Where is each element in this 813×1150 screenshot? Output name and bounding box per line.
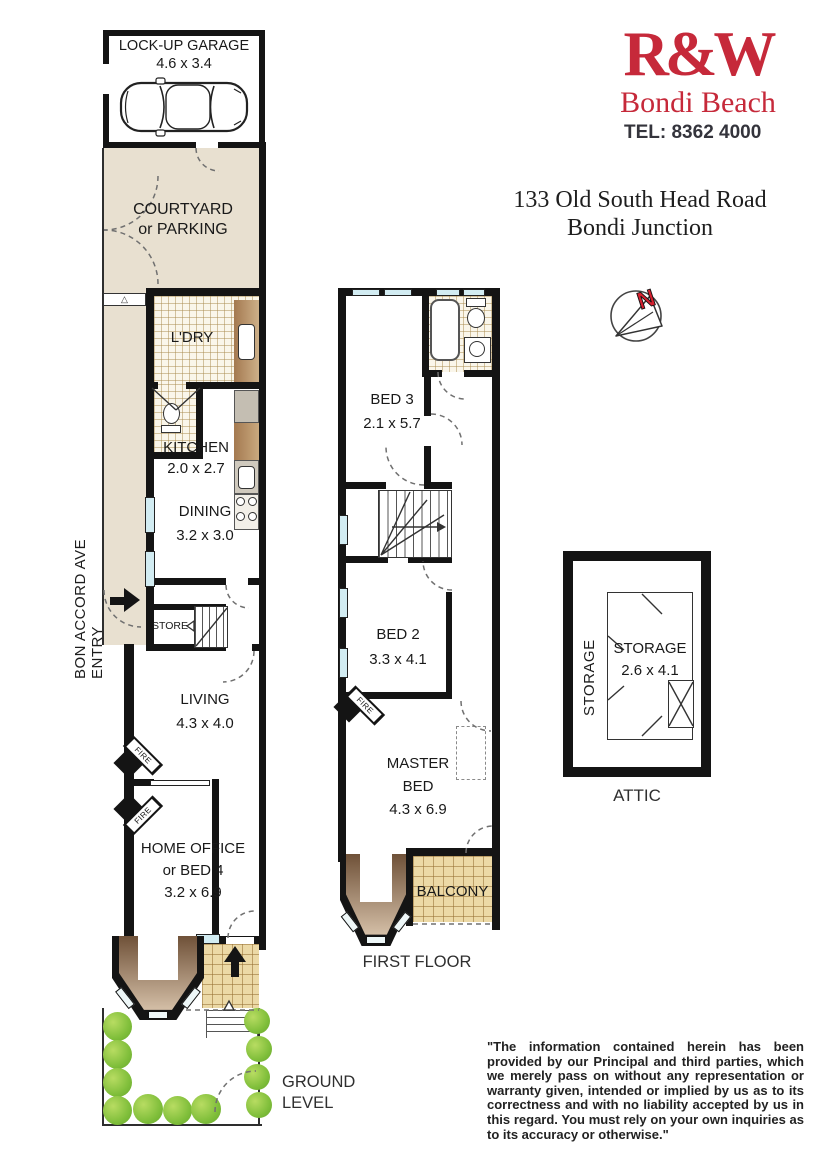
attic-hatch xyxy=(668,680,694,728)
bush-icon xyxy=(244,1064,270,1090)
laundry-name: L'DRY xyxy=(152,326,232,349)
level-label-attic: ATTIC xyxy=(592,784,682,807)
wall xyxy=(422,296,429,376)
master-name: MASTER xyxy=(366,752,470,775)
wall xyxy=(464,370,500,377)
address-line1: 133 Old South Head Road xyxy=(513,187,766,213)
door-arc xyxy=(228,911,255,938)
room-label-attic-storage: STORAGE 2.6 x 4.1 xyxy=(608,638,692,682)
bush-icon xyxy=(246,1036,272,1062)
window xyxy=(384,289,412,296)
room-label-balcony: BALCONY xyxy=(413,880,492,903)
door-arc xyxy=(386,447,424,485)
ground-level-line1: GROUND xyxy=(282,1072,382,1093)
bush-icon xyxy=(103,1068,132,1097)
room-label-living: LIVING 4.3 x 4.0 xyxy=(146,688,264,736)
bathtub-icon xyxy=(430,299,460,361)
room-label-garage: LOCK-UP GARAGE 4.6 x 3.4 xyxy=(109,37,259,73)
attic-storage-name: STORAGE xyxy=(608,638,692,660)
bush-icon xyxy=(163,1096,192,1125)
street-label: BON ACCORD AVE ENTRY xyxy=(72,494,106,679)
courtyard-name2: or PARKING xyxy=(103,220,263,240)
entry-arrow-icon xyxy=(224,946,246,978)
room-label-home-office: HOME OFFICE or BED 4 3.2 x 6.9 xyxy=(117,838,269,904)
toilet-icon xyxy=(163,403,180,424)
bush-icon xyxy=(244,1008,270,1034)
wall xyxy=(406,848,500,856)
stairs-icon xyxy=(194,606,228,648)
room-label-dining: DINING 3.2 x 3.0 xyxy=(146,500,264,548)
bush-icon xyxy=(103,1096,132,1125)
room-label-bed3: BED 3 2.1 x 5.7 xyxy=(344,388,440,436)
bush-icon xyxy=(103,1040,132,1069)
kitchen-name: KITCHEN xyxy=(142,437,250,458)
store-name: STORE xyxy=(147,620,193,632)
wall xyxy=(338,288,346,862)
laundry-sink-icon xyxy=(238,324,255,360)
window xyxy=(463,289,485,296)
master-name2: BED xyxy=(366,775,470,798)
toilet-icon xyxy=(467,308,485,328)
gate-marker: △ xyxy=(103,293,146,306)
wall xyxy=(252,644,266,651)
door-arc xyxy=(223,651,254,682)
window xyxy=(145,551,155,587)
toilet-tank xyxy=(466,298,486,307)
door-arc xyxy=(423,561,452,590)
living-dims: 4.3 x 4.0 xyxy=(146,712,264,736)
north-compass-icon: N xyxy=(606,282,670,346)
room-label-laundry: L'DRY xyxy=(152,326,232,349)
phone-number: TEL: 8362 4000 xyxy=(598,122,798,144)
home-office-name2: or BED 4 xyxy=(117,860,269,882)
courtyard-name: COURTYARD xyxy=(103,200,263,220)
window xyxy=(339,648,348,678)
bay-opening xyxy=(360,854,392,902)
room-label-master-bed: MASTER BED 4.3 x 6.9 xyxy=(366,752,470,821)
stairs-icon xyxy=(378,490,452,558)
bay-window xyxy=(340,854,412,946)
wall xyxy=(146,578,226,585)
front-door-gap xyxy=(226,937,254,944)
level-label-first: FIRST FLOOR xyxy=(358,952,476,973)
living-name: LIVING xyxy=(146,688,264,712)
kitchen-dims: 2.0 x 2.7 xyxy=(142,458,250,479)
balcony-name: BALCONY xyxy=(413,880,492,903)
fence-line xyxy=(102,1124,262,1126)
agency-logo: R&W Bondi Beach TEL: 8362 4000 xyxy=(598,22,798,144)
wall xyxy=(146,382,158,389)
entry-arrow-icon xyxy=(110,588,142,612)
mantel-ledge xyxy=(150,780,210,786)
window xyxy=(436,289,460,296)
room-label-store: STORE xyxy=(147,620,193,632)
garage-dims: 4.6 x 3.4 xyxy=(109,55,259,73)
room-label-kitchen: KITCHEN 2.0 x 2.7 xyxy=(142,437,250,479)
window xyxy=(352,289,380,296)
toilet-tank xyxy=(161,425,181,433)
dining-name: DINING xyxy=(146,500,264,524)
master-dims: 4.3 x 6.9 xyxy=(366,798,470,821)
door-gap xyxy=(196,142,218,148)
office-name: Bondi Beach xyxy=(598,86,798,119)
window xyxy=(339,588,348,618)
home-office-dims: 3.2 x 6.9 xyxy=(117,882,269,904)
wall xyxy=(424,482,452,489)
room-label-bed2: BED 2 3.3 x 4.1 xyxy=(348,622,448,672)
wall xyxy=(346,482,386,489)
level-label-ground: GROUND LEVEL xyxy=(282,1072,382,1114)
window xyxy=(148,1011,168,1019)
wall xyxy=(492,288,500,930)
room-label-courtyard: COURTYARD or PARKING xyxy=(103,200,263,240)
bed2-name: BED 2 xyxy=(348,622,448,647)
garage-name: LOCK-UP GARAGE xyxy=(109,37,259,55)
attic-storage-dims: 2.6 x 4.1 xyxy=(608,660,692,682)
bed3-dims: 2.1 x 5.7 xyxy=(344,412,440,436)
attic-label: ATTIC xyxy=(592,784,682,807)
disclaimer-text: "The information contained herein has be… xyxy=(487,1040,804,1142)
bay-opening xyxy=(138,936,178,980)
door-arc xyxy=(226,585,249,608)
bush-icon xyxy=(133,1094,163,1124)
rw-logo-text: R&W xyxy=(598,22,798,86)
bush-icon xyxy=(246,1092,272,1118)
property-address: 133 Old South Head Road Bondi Junction xyxy=(480,186,800,242)
car-icon xyxy=(118,76,250,138)
door-arc xyxy=(438,372,465,399)
floorplan-page: R&W Bondi Beach TEL: 8362 4000 133 Old S… xyxy=(0,0,813,1150)
window xyxy=(366,936,386,944)
wall xyxy=(248,578,266,585)
bed3-name: BED 3 xyxy=(344,388,440,412)
fridge-icon xyxy=(234,390,259,423)
bed2-dims: 3.3 x 4.1 xyxy=(348,647,448,672)
bush-icon xyxy=(191,1094,221,1124)
home-office-name: HOME OFFICE xyxy=(117,838,269,860)
window xyxy=(339,515,348,545)
basin-bowl xyxy=(469,341,485,357)
ground-level-line2: LEVEL xyxy=(282,1093,382,1114)
dining-dims: 3.2 x 3.0 xyxy=(146,524,264,548)
first-floor-label: FIRST FLOOR xyxy=(358,952,476,973)
wall xyxy=(146,288,266,296)
bay-window xyxy=(112,936,204,1020)
address-line2: Bondi Junction xyxy=(567,215,713,241)
attic-storage-side-label: STORAGE xyxy=(581,630,598,716)
